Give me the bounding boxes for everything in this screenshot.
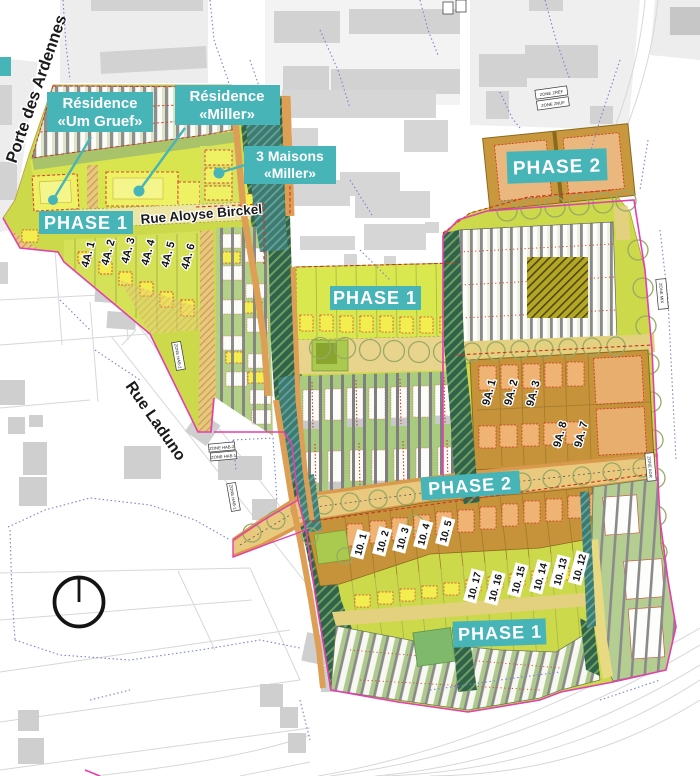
svg-text:«Miller»: «Miller» [264,165,316,181]
svg-text:Résidence: Résidence [189,88,264,105]
svg-text:PHASE 1: PHASE 1 [44,213,128,233]
svg-text:«Miller»: «Miller» [199,106,255,123]
svg-text:PHASE 1: PHASE 1 [458,622,543,645]
svg-text:«Um Gruef»: «Um Gruef» [57,113,142,130]
svg-text:3 Maisons: 3 Maisons [256,148,324,164]
svg-text:PHASE 1: PHASE 1 [333,288,417,308]
svg-text:PHASE 2: PHASE 2 [513,155,602,179]
svg-text:Résidence: Résidence [62,95,137,112]
